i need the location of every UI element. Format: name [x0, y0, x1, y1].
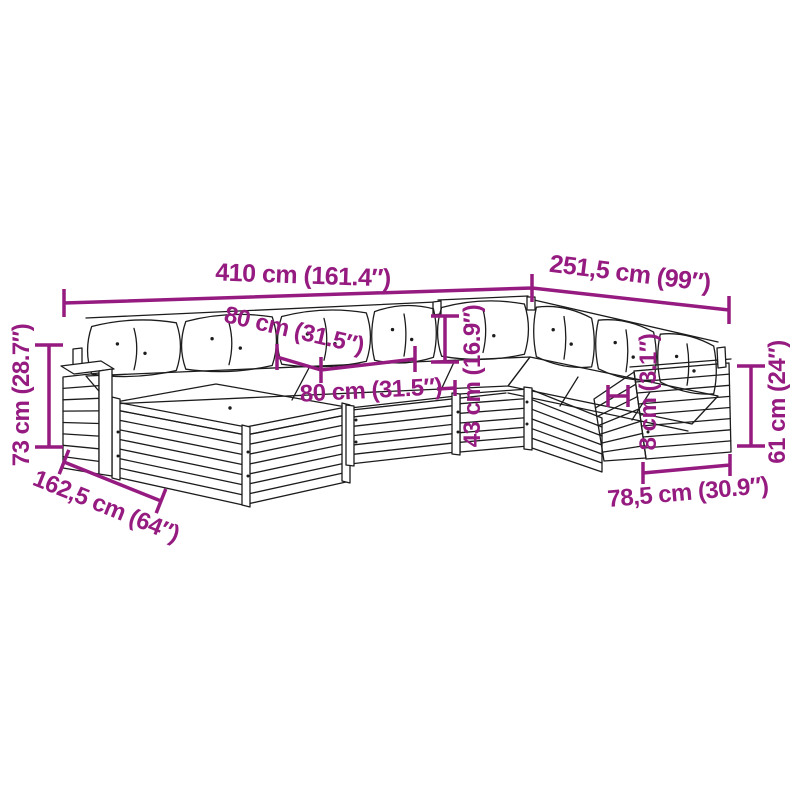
dimension-diagram: 410 cm (161.4″) 251,5 cm (99″) 80 cm (31… [0, 0, 800, 800]
left-armrest [61, 348, 114, 476]
back-frame [86, 296, 718, 342]
dim-line-total-height [35, 345, 63, 447]
dim-label-backrest-height: 43 cm (16.9″) [459, 305, 487, 447]
dim-label-cushion-thickness: 8 cm (3.1″) [635, 334, 663, 451]
dim-label-armrest-height: 61 cm (24″) [764, 340, 792, 463]
screw-dots [117, 401, 650, 478]
dim-label-total-height: 73 cm (28.7″) [8, 324, 36, 466]
dim-label-total-width: 410 cm (161.4″) [215, 258, 391, 293]
dim-line-armrest-height [737, 366, 765, 446]
